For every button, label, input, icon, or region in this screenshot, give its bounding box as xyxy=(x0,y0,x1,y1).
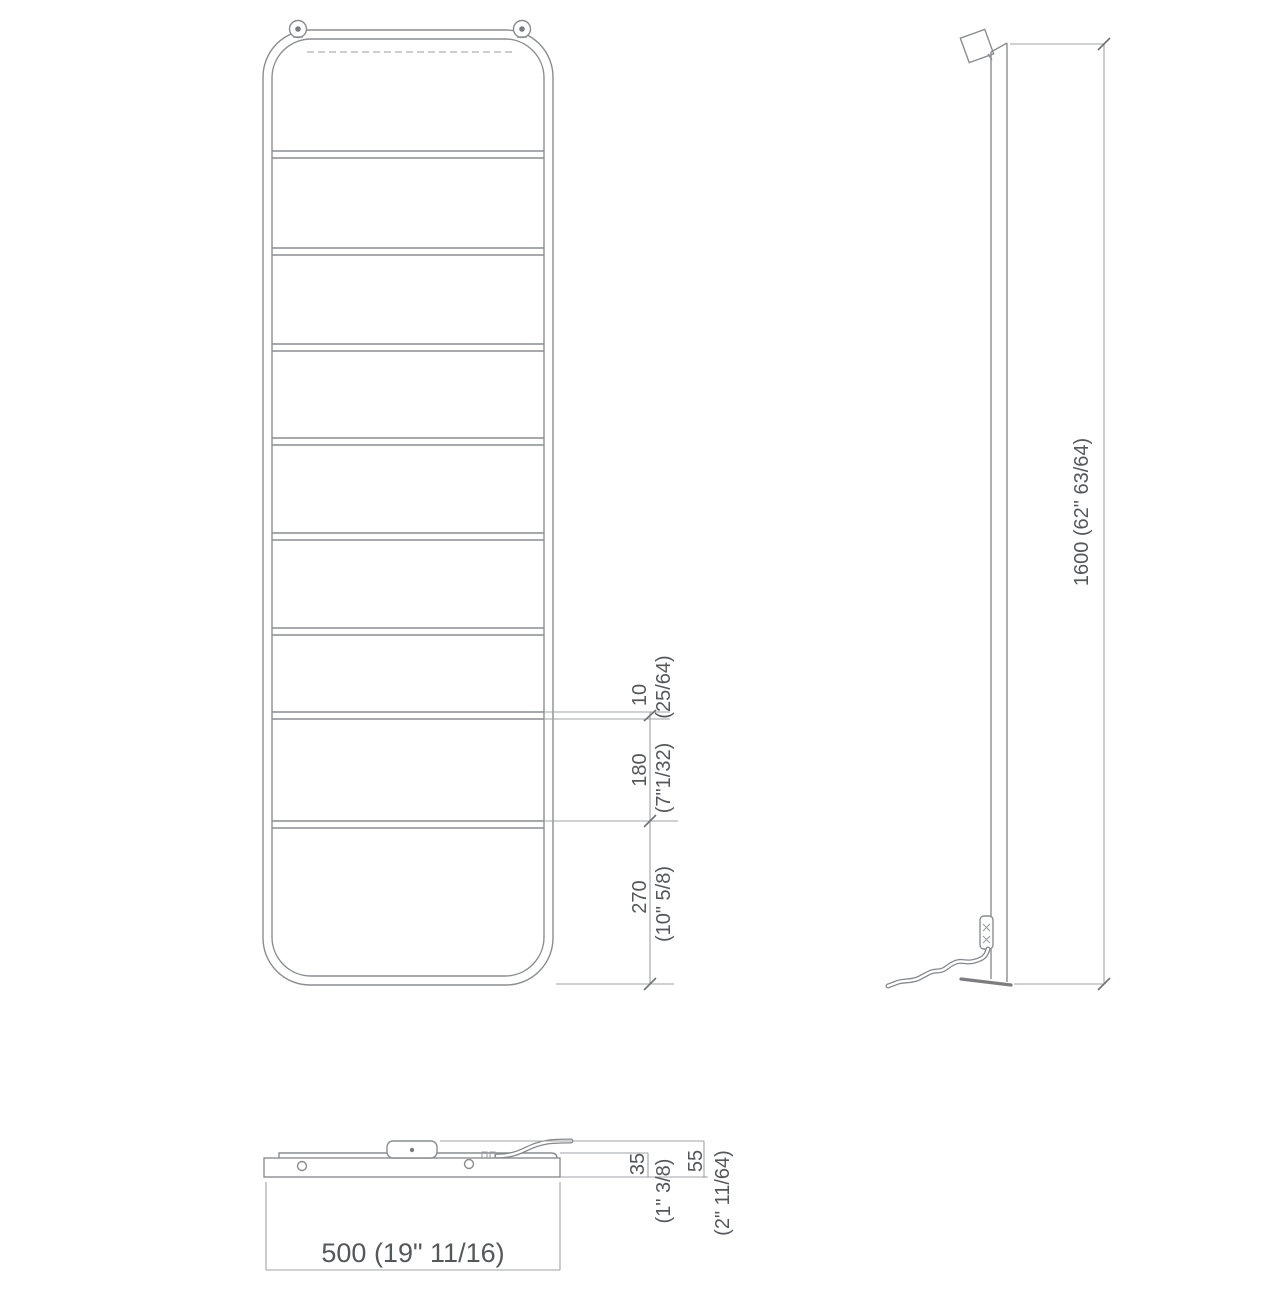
rung-6 xyxy=(272,628,544,635)
junction-box xyxy=(980,916,993,949)
rung-7 xyxy=(272,712,544,719)
mounting-hole-left xyxy=(298,1162,307,1171)
dim-panel-depth-mm: 35 xyxy=(627,1153,649,1175)
side-hook-icon xyxy=(960,29,993,62)
panel-bottom-cap xyxy=(961,979,1011,985)
side-panel xyxy=(961,43,1011,985)
frame-inner-outline xyxy=(272,39,544,976)
dim-height: 1600 (62" 63/64) xyxy=(1071,438,1093,586)
rung-3 xyxy=(272,344,544,351)
dim-rung-diameter-mm: 10 xyxy=(629,684,651,706)
left-hook-icon xyxy=(290,21,307,38)
plan-bracket xyxy=(387,1141,437,1158)
dim-rung-diameter-inch: (25/64) xyxy=(653,655,675,718)
technical-drawing: 10 (25/64) 180 (7"1/32) 270 (10" 5/8) xyxy=(0,0,1274,1308)
frame-outer-outline xyxy=(263,30,553,985)
rungs xyxy=(272,151,544,828)
dim-bottom-section-mm: 270 xyxy=(629,880,651,913)
dim-rung-spacing-inch: (7"1/32) xyxy=(653,743,675,813)
bottom-view: 500 (19" 11/16) 35 (1" 3/8) 55 (2" 11/64… xyxy=(264,1141,734,1270)
right-hook-icon xyxy=(514,21,531,38)
dim-total-depth-mm: 55 xyxy=(685,1150,707,1172)
dim-bottom-section-inch: (10" 5/8) xyxy=(653,866,675,942)
dim-total-depth-inch: (2" 11/64) xyxy=(712,1150,734,1236)
dim-panel-depth-inch: (1" 3/8) xyxy=(653,1159,675,1224)
rung-5 xyxy=(272,533,544,540)
rung-4 xyxy=(272,438,544,445)
dim-rung-spacing-mm: 180 xyxy=(629,753,651,786)
side-dimension-lines xyxy=(1010,38,1110,990)
rung-8 xyxy=(272,821,544,828)
front-view: 10 (25/64) 180 (7"1/32) 270 (10" 5/8) xyxy=(263,21,678,991)
plan-cable xyxy=(497,1141,571,1156)
dim-width: 500 (19" 11/16) xyxy=(321,1238,504,1268)
plan-panel-body xyxy=(264,1158,560,1177)
side-view: 1600 (62" 63/64) xyxy=(888,29,1110,990)
rung-2 xyxy=(272,248,544,255)
drawing-sheet: 10 (25/64) 180 (7"1/32) 270 (10" 5/8) xyxy=(0,0,1274,1308)
mounting-hole-right xyxy=(465,1160,474,1169)
rung-1 xyxy=(272,151,544,158)
